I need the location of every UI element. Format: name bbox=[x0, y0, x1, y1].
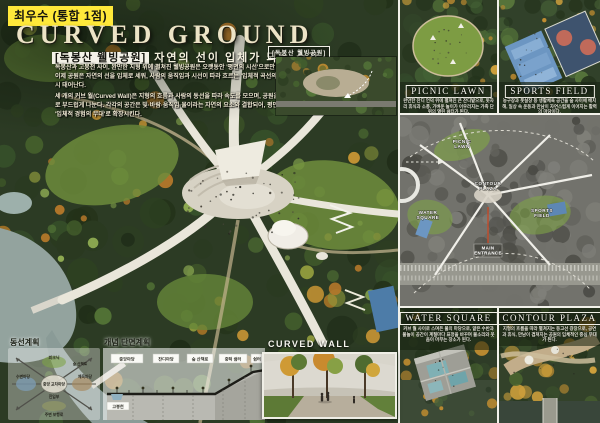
subtitle-park-tag: [독봉산 웰빙공원] bbox=[52, 52, 149, 64]
plan-label-sports: SPORTSFIELD bbox=[531, 208, 553, 218]
site-plan-drawing: PICNICLAWN WATERSQUARE CONTOURPLAZA SPOR… bbox=[400, 115, 600, 306]
picnic-lawn-caption: 완만한 잔디 언덕 위에 펼쳐진 큰 잔디밭으로, 돗자리 휴식과 소풍, 가벼… bbox=[402, 98, 495, 113]
circulation-zone-water bbox=[16, 377, 36, 391]
intro-paragraph-1: 독봉산과 고봉천 사이, 완만한 지형 위에 펼쳐진 웰빙공원은 오랫동안 '평… bbox=[55, 64, 310, 91]
curved-wall-title: CURVED WALL bbox=[268, 339, 350, 349]
small-dome bbox=[316, 252, 328, 260]
water-square-label: WATER SQUARE bbox=[400, 312, 497, 325]
inset-road bbox=[276, 101, 396, 107]
circulation-label-perimeter: 주변 보행로 bbox=[45, 412, 64, 417]
inset-site-detail bbox=[316, 76, 340, 90]
circulation-plan-title: 동선계획 bbox=[10, 337, 39, 348]
intro-paragraph-2: 세 개의 커브 월(Curved Wall)은 지형의 흐름과 사람의 동선을 … bbox=[55, 93, 310, 120]
curved-wall-photo bbox=[264, 354, 395, 417]
sports-field-label: SPORTS FIELD bbox=[504, 85, 594, 98]
water-square-card: WATER SQUARE 커브 월 사이로 스며든 물의 마당으로, 얕은 수반… bbox=[400, 308, 497, 423]
site-plan-aerial: PICNICLAWN WATERSQUARE CONTOURPLAZA SPOR… bbox=[400, 115, 600, 306]
circulation-zone-entry bbox=[42, 401, 66, 411]
round-pavilion-roof bbox=[272, 220, 296, 236]
circulation-label-water: 수변마당 bbox=[16, 374, 30, 379]
picnic-lawn-label: PICNIC LAWN bbox=[405, 85, 492, 98]
circulation-label-picnic: 피크닉 bbox=[48, 354, 59, 360]
divider-row3-top bbox=[398, 306, 600, 308]
curved-wall-frame bbox=[262, 352, 397, 419]
circulation-label-entry: 진입부 bbox=[49, 394, 60, 399]
circulation-label-sports: 체육마당 bbox=[78, 374, 92, 379]
water-square-caption: 커브 월 사이로 스며든 물의 마당으로, 얕은 수반과 물놀이 공간이 계절마… bbox=[402, 326, 495, 343]
inset-site-photo bbox=[276, 57, 396, 115]
plan-label-picnic: PICNICLAWN bbox=[453, 139, 472, 149]
contour-plaza-card: CONTOUR PLAZA 지형의 흐름을 따라 펼쳐지는 등고선 광장으로, … bbox=[499, 308, 600, 423]
section-plan-title: 개념 단면계획 bbox=[104, 337, 150, 348]
circulation-label-trail: 숲 산책로 bbox=[73, 361, 88, 366]
divider-row1-bottom bbox=[398, 113, 600, 115]
contour-plaza-caption: 지형의 흐름을 따라 펼쳐지는 등고선 광장으로, 공연과 휴식, 만남이 겹쳐… bbox=[501, 326, 598, 343]
circulation-zone-sports bbox=[72, 377, 92, 391]
cw-shadow bbox=[318, 401, 332, 404]
section-box-2: 잔디마당 bbox=[158, 356, 174, 363]
section-box-3: 숲 산책로 bbox=[192, 356, 209, 363]
section-box-5: 쉼터 bbox=[253, 356, 261, 363]
section-stream bbox=[111, 394, 123, 400]
sports-field-caption: 농구장과 풋살장 등 생활체육 공간을 숲 사이에 배치해, 일상 속 운동과 … bbox=[501, 98, 598, 113]
section-box-1: 중앙마당 bbox=[119, 356, 135, 363]
circulation-label-center: 중앙 교차마당 bbox=[43, 382, 66, 387]
divider-row1-middle bbox=[497, 0, 499, 113]
contour-bridge bbox=[543, 398, 557, 423]
plan-label-water: WATERSQUARE bbox=[417, 210, 440, 220]
contour-pavilion-2 bbox=[551, 346, 559, 354]
lawn-south bbox=[157, 274, 253, 330]
sports-field-card: SPORTS FIELD 농구장과 풋살장 등 생활체육 공간을 숲 사이에 배… bbox=[499, 0, 600, 113]
section-box-4: 중턱 쉼터 bbox=[225, 356, 242, 363]
contour-plaza-label: CONTOUR PLAZA bbox=[499, 312, 600, 325]
picnic-lawn-card: PICNIC LAWN 완만한 잔디 언덕 위에 펼쳐진 큰 잔디밭으로, 돗자… bbox=[400, 0, 497, 113]
section-stream-label: 고봉천 bbox=[112, 403, 124, 410]
contour-pavilion-1 bbox=[525, 356, 534, 365]
competition-board-curved-ground: 최우수 (통합 1점) CURVED GROUND [독봉산 웰빙공원] 자연의… bbox=[0, 0, 600, 423]
divider-main-vertical bbox=[398, 0, 400, 423]
plaza-stage bbox=[219, 183, 275, 209]
circulation-diagram: 피크닉 숲 산책로 수변마당 중앙 교차마당 체육마당 진입부 주변 보행로 bbox=[8, 348, 100, 420]
divider-row3-middle bbox=[497, 306, 499, 423]
section-diagram: 고봉천 중앙마당 잔디마당 숲 산책로 중턱 쉼터 쉼터 bbox=[103, 348, 265, 420]
